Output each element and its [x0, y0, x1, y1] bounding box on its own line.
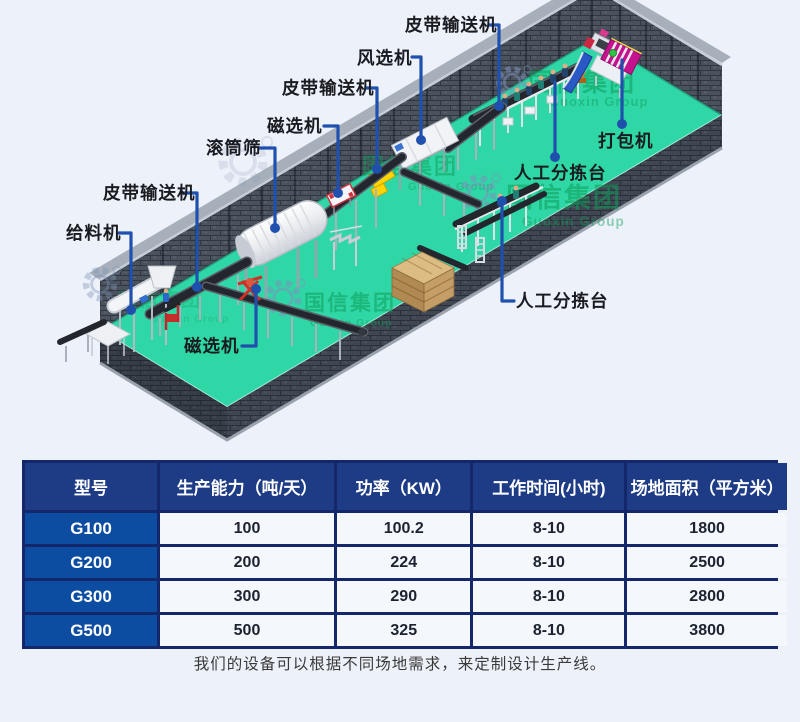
model-cell: G500 [25, 615, 157, 646]
table-cell: 8-10 [473, 581, 624, 612]
col-header-model: 型号 [25, 463, 157, 510]
table-cell: 100 [160, 513, 334, 544]
table-cell: 3800 [627, 615, 787, 646]
sorting-bin [503, 118, 513, 125]
col-header-capacity: 生产能力（吨/天） [160, 463, 334, 510]
col-header-area: 场地面积（平方米） [627, 463, 787, 510]
label-belt-conveyor-top: 皮带输送机 [405, 15, 498, 35]
model-cell: G300 [25, 581, 157, 612]
label-magnetic-separator-top: 磁选机 [267, 116, 323, 136]
table-cell: 500 [160, 615, 334, 646]
table-cell: 200 [160, 547, 334, 578]
watermark-cn: 国信集团 [304, 291, 396, 315]
spec-table: 型号 生产能力（吨/天） 功率（KW） 工作时间(小时) 场地面积（平方米） G… [22, 460, 778, 649]
table-cell: 100.2 [337, 513, 470, 544]
label-belt-conveyor-mid: 皮带输送机 [282, 78, 375, 98]
table-cell: 2800 [627, 581, 787, 612]
table-cell: 300 [160, 581, 334, 612]
baler-green-light [610, 50, 617, 57]
label-baler: 打包机 [598, 131, 654, 151]
caption-text: 我们的设备可以根据不同场地需求，来定制设计生产线。 [0, 652, 800, 674]
label-magnetic-separator-btm: 磁选机 [184, 336, 240, 356]
table-cell: 8-10 [473, 513, 624, 544]
col-header-hours: 工作时间(小时) [473, 463, 624, 510]
worker-blue [163, 289, 169, 302]
label-sorting-platform-top: 人工分拣台 [514, 163, 607, 183]
table-cell: 2500 [627, 547, 787, 578]
model-cell: G200 [25, 547, 157, 578]
watermark-en: Guoxin Group [150, 314, 229, 325]
label-belt-conveyor-left: 皮带输送机 [103, 183, 196, 203]
sorting-bin [525, 107, 535, 114]
table-cell: 8-10 [473, 615, 624, 646]
table-cell: 1800 [627, 513, 787, 544]
table-cell: 325 [337, 615, 470, 646]
table-cell: 224 [337, 547, 470, 578]
label-feeder: 给料机 [66, 223, 122, 243]
page: 国信集团 Guoxin Group 国信集团 Guoxin Group 国信集团… [0, 0, 800, 722]
label-air-separator: 风选机 [357, 48, 413, 68]
model-cell: G100 [25, 513, 157, 544]
label-drum-screen: 滚筒筛 [206, 138, 262, 158]
watermark-en: Guoxin Group [522, 214, 625, 229]
production-line-diagram: 国信集团 Guoxin Group 国信集团 Guoxin Group 国信集团… [0, 0, 800, 460]
col-header-power: 功率（KW） [337, 463, 470, 510]
table-cell: 290 [337, 581, 470, 612]
label-sorting-platform-btm: 人工分拣台 [516, 291, 609, 311]
table-cell: 8-10 [473, 547, 624, 578]
